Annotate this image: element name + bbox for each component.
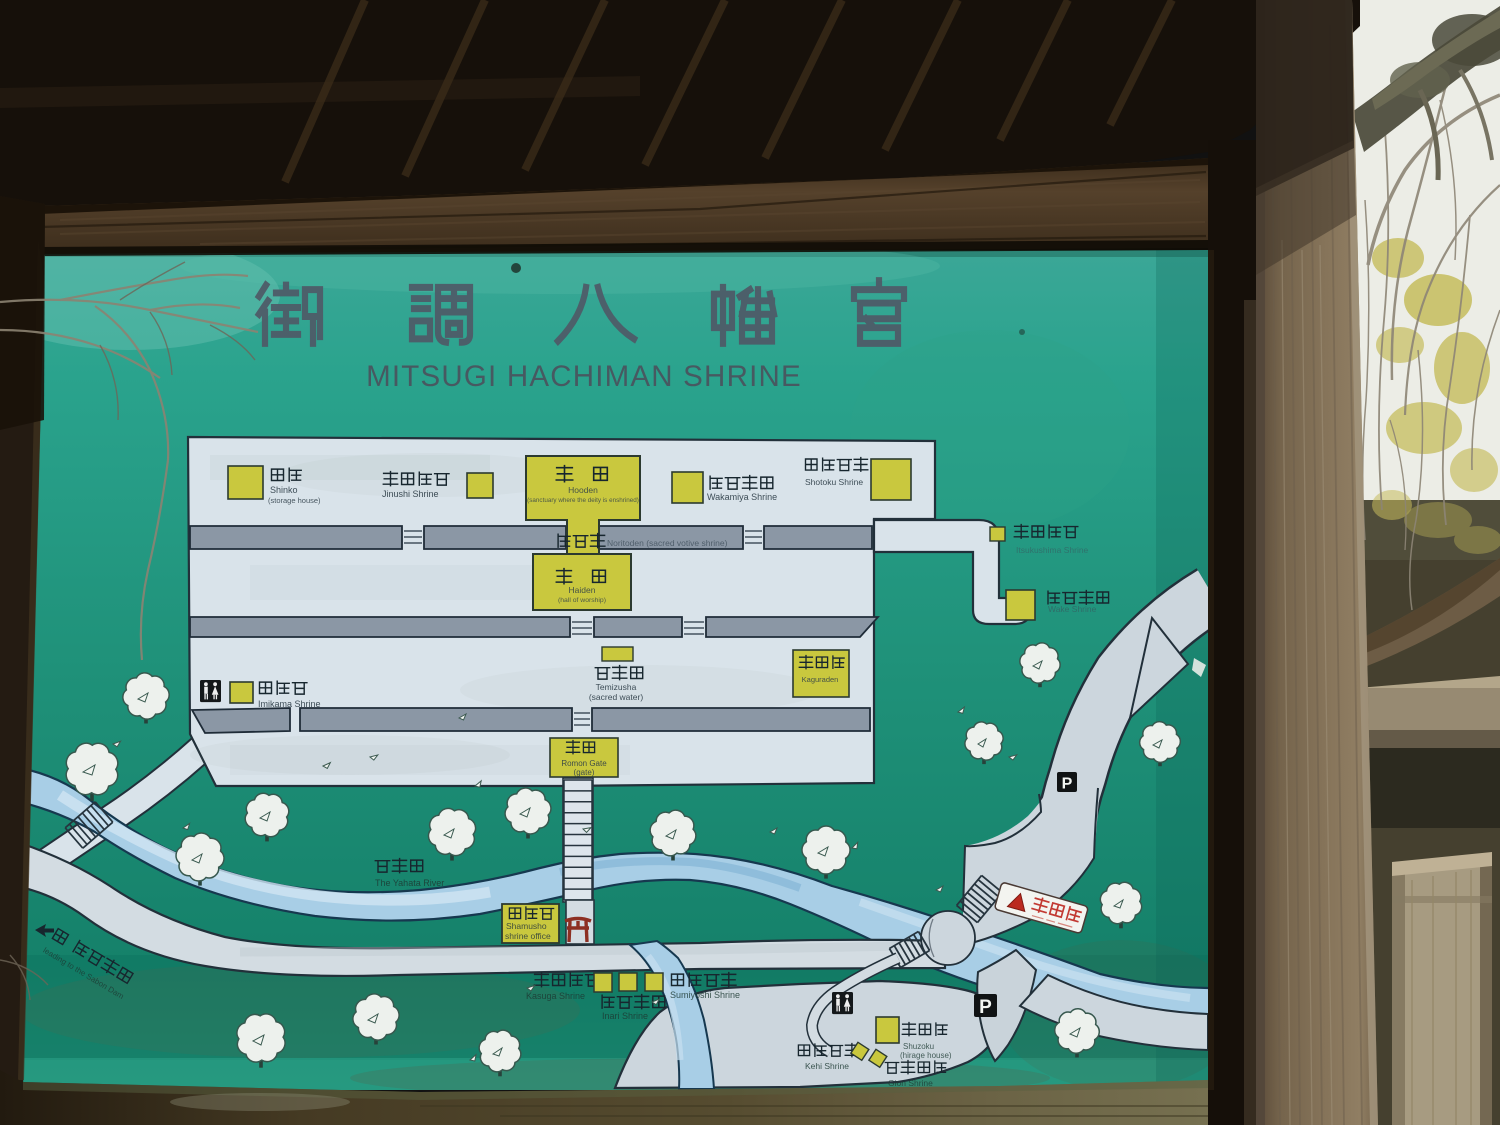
svg-text:Sumiyoshi Shrine: Sumiyoshi Shrine: [670, 990, 740, 1000]
svg-text:Shuzoku: Shuzoku: [903, 1042, 934, 1051]
svg-text:Kehi Shrine: Kehi Shrine: [805, 1061, 849, 1071]
svg-text:Shamusho: Shamusho: [506, 921, 547, 931]
svg-text:P: P: [1062, 775, 1073, 792]
svg-text:Imikama Shrine: Imikama Shrine: [258, 699, 321, 709]
svg-text:(sanctuary where the deity is: (sanctuary where the deity is enshrined): [527, 497, 639, 504]
svg-text:Gion Shrine: Gion Shrine: [888, 1078, 933, 1088]
svg-text:Wake Shrine: Wake Shrine: [1048, 604, 1097, 614]
svg-text:Romon Gate: Romon Gate: [561, 759, 607, 768]
svg-text:(gate): (gate): [574, 768, 595, 777]
svg-text:Noritoden (sacred votive shrin: Noritoden (sacred votive shrine): [607, 538, 728, 548]
svg-text:MITSUGI HACHIMAN SHRINE: MITSUGI HACHIMAN SHRINE: [366, 360, 802, 393]
svg-text:Temizusha: Temizusha: [596, 682, 637, 692]
svg-text:Kasuga Shrine: Kasuga Shrine: [526, 991, 585, 1001]
svg-text:The Yahata River: The Yahata River: [375, 878, 444, 888]
svg-text:Jinushi Shrine: Jinushi Shrine: [382, 489, 439, 499]
svg-text:(hirage house): (hirage house): [900, 1051, 952, 1060]
svg-text:(sacred water): (sacred water): [589, 692, 643, 702]
svg-text:Haiden: Haiden: [569, 585, 596, 595]
svg-text:P: P: [979, 997, 992, 1018]
svg-text:(storage house): (storage house): [268, 496, 321, 505]
svg-text:Shotoku Shrine: Shotoku Shrine: [805, 477, 863, 487]
svg-text:Kaguraden: Kaguraden: [802, 675, 839, 684]
svg-text:Inari Shrine: Inari Shrine: [602, 1011, 648, 1021]
svg-text:Itsukushima Shrine: Itsukushima Shrine: [1016, 545, 1089, 555]
svg-text:shrine office: shrine office: [505, 931, 551, 941]
svg-text:Hooden: Hooden: [568, 485, 598, 495]
svg-text:(hall of worship): (hall of worship): [558, 597, 606, 604]
svg-text:Wakamiya Shrine: Wakamiya Shrine: [707, 492, 777, 502]
svg-text:Shinko: Shinko: [270, 485, 298, 495]
